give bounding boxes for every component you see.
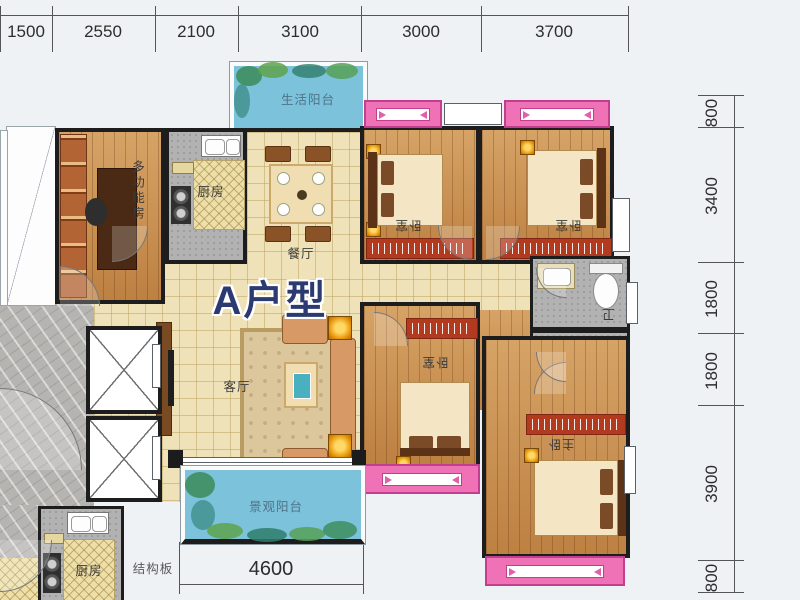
neighbor-kitchen-label: 厨房 [64, 560, 114, 579]
coffee-table-glass [293, 373, 311, 399]
dim-tick [698, 262, 744, 263]
neighbor-kitchen [38, 506, 124, 600]
dining-chair [305, 226, 331, 242]
view-balcony-label: 景观阳台 [226, 496, 326, 515]
plant [323, 521, 357, 539]
bedroom-middle-label: 卧室 [410, 354, 460, 373]
dim-top-2100: 2100 [166, 22, 226, 42]
hanger-pattern [506, 243, 606, 254]
bed [400, 382, 470, 454]
bed [534, 460, 618, 536]
wardrobe [526, 414, 626, 435]
dim-tick [361, 6, 362, 52]
bay-window-pane [376, 108, 429, 121]
dim-line-right [734, 95, 735, 592]
dim-right-3900: 3900 [702, 454, 722, 514]
bed-headboard [597, 148, 606, 228]
plant [289, 527, 325, 541]
sink-basin [71, 516, 91, 532]
bay-window-pane [506, 565, 604, 578]
floorplan-canvas: 1500 2550 2100 3100 3000 3700 800 3400 1… [0, 0, 800, 600]
elevator-door [152, 344, 161, 388]
window-top-center [444, 103, 502, 125]
centerpiece [297, 190, 307, 200]
plant [247, 528, 287, 542]
bathroom-upper-label: 卫 [596, 306, 620, 325]
plate [277, 203, 290, 216]
kitchen-sink [201, 135, 241, 157]
plate [277, 172, 290, 185]
toilet-bowl [593, 273, 619, 309]
dim-tick [363, 542, 364, 594]
sink-basin [92, 516, 107, 532]
dim-tick [698, 333, 744, 334]
living-label: 客厅 [212, 376, 262, 395]
dining-chair [305, 146, 331, 162]
wardrobe [406, 318, 478, 339]
coffee-table [284, 362, 318, 408]
nightstand-lamp [520, 140, 535, 155]
sink-basin [226, 139, 240, 155]
bed-headboard [400, 448, 470, 456]
tv-screen [168, 350, 174, 406]
master-bedroom-label: 主卧 [536, 436, 586, 455]
multi-function-label: 多功能房 [128, 148, 147, 234]
plant [258, 62, 288, 78]
bay-window-top-right [504, 100, 610, 128]
bay-window-pane [382, 473, 463, 486]
bed-headboard [368, 152, 377, 228]
plant [292, 64, 326, 78]
bay-window-middle [364, 464, 480, 494]
plant [326, 63, 358, 79]
hanger-pattern [412, 323, 472, 334]
dim-tick [155, 6, 156, 52]
desk-chair [85, 198, 107, 226]
bay-window-master [485, 556, 625, 586]
pillow [381, 161, 394, 185]
dim-line-top [0, 15, 629, 16]
structure-board-label: 结构板 [122, 558, 184, 577]
bedroom-top-left-label: 卧室 [383, 217, 433, 236]
dim-top-3000: 3000 [391, 22, 451, 42]
pillow [580, 159, 593, 185]
plant [185, 472, 215, 498]
unit-title: A户型 [200, 268, 340, 326]
hanger-pattern [532, 419, 620, 430]
pillow [600, 469, 613, 495]
bay-window-top-left [364, 100, 442, 128]
kitchen-sink [67, 512, 109, 534]
pillow [381, 193, 394, 217]
elevator-shaft-upper [86, 326, 162, 414]
pillow [600, 503, 613, 529]
bed [377, 154, 443, 226]
window-right-bath [626, 282, 638, 324]
dim-top-2550: 2550 [73, 22, 133, 42]
window-right-bedroom [612, 198, 630, 252]
dining-table [269, 164, 333, 224]
dining-chair [265, 146, 291, 162]
life-balcony-label: 生活阳台 [258, 89, 358, 108]
dim-right-1800a: 1800 [702, 269, 722, 329]
dim-right-800a: 800 [702, 83, 722, 143]
dim-tick [238, 6, 239, 52]
elevator-door [152, 436, 161, 480]
kitchen-label: 厨房 [186, 181, 236, 200]
neighbor-panel [6, 126, 56, 306]
elevator-shaft-lower [86, 416, 162, 502]
bedroom-top-right-label: 卧室 [543, 217, 593, 236]
bed [527, 150, 597, 226]
dim-tick [481, 6, 482, 52]
plate [312, 203, 325, 216]
plate [312, 172, 325, 185]
dim-right-1800b: 1800 [702, 341, 722, 401]
bay-window-pane [520, 108, 593, 121]
plant [234, 84, 250, 118]
plant [207, 523, 243, 539]
pillow [580, 193, 593, 219]
dim-top-3700: 3700 [524, 22, 584, 42]
dim-tick [698, 405, 744, 406]
dim-bottom-4600: 4600 [241, 558, 301, 581]
left-edge-strip [0, 130, 8, 306]
dim-tick [628, 6, 629, 52]
dim-right-3400: 3400 [702, 166, 722, 226]
sink-basin [205, 139, 225, 155]
floor-lamp [328, 434, 352, 458]
dim-line-bottom [179, 584, 363, 585]
dim-top-3100: 3100 [270, 22, 330, 42]
cutting-board [172, 162, 194, 174]
dining-label: 餐厅 [276, 243, 326, 262]
dining-chair [265, 226, 291, 242]
dim-top-1500: 1500 [0, 22, 56, 42]
dim-right-800b: 800 [702, 548, 722, 600]
window-right-master [624, 446, 636, 494]
